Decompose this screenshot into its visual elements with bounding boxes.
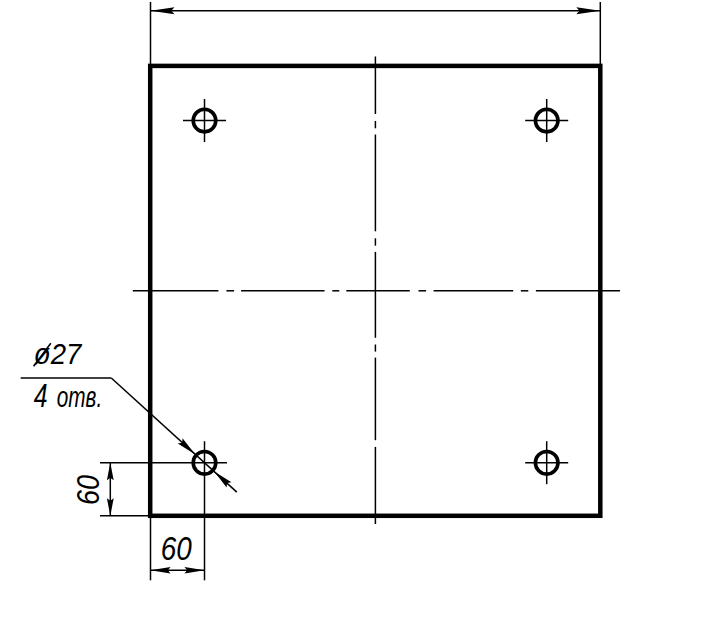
svg-text:60: 60 [70, 475, 106, 505]
svg-text:omв.: omв. [57, 381, 102, 413]
svg-text:ø27: ø27 [34, 338, 83, 370]
svg-text:60: 60 [161, 529, 192, 567]
svg-text:4: 4 [34, 377, 48, 414]
